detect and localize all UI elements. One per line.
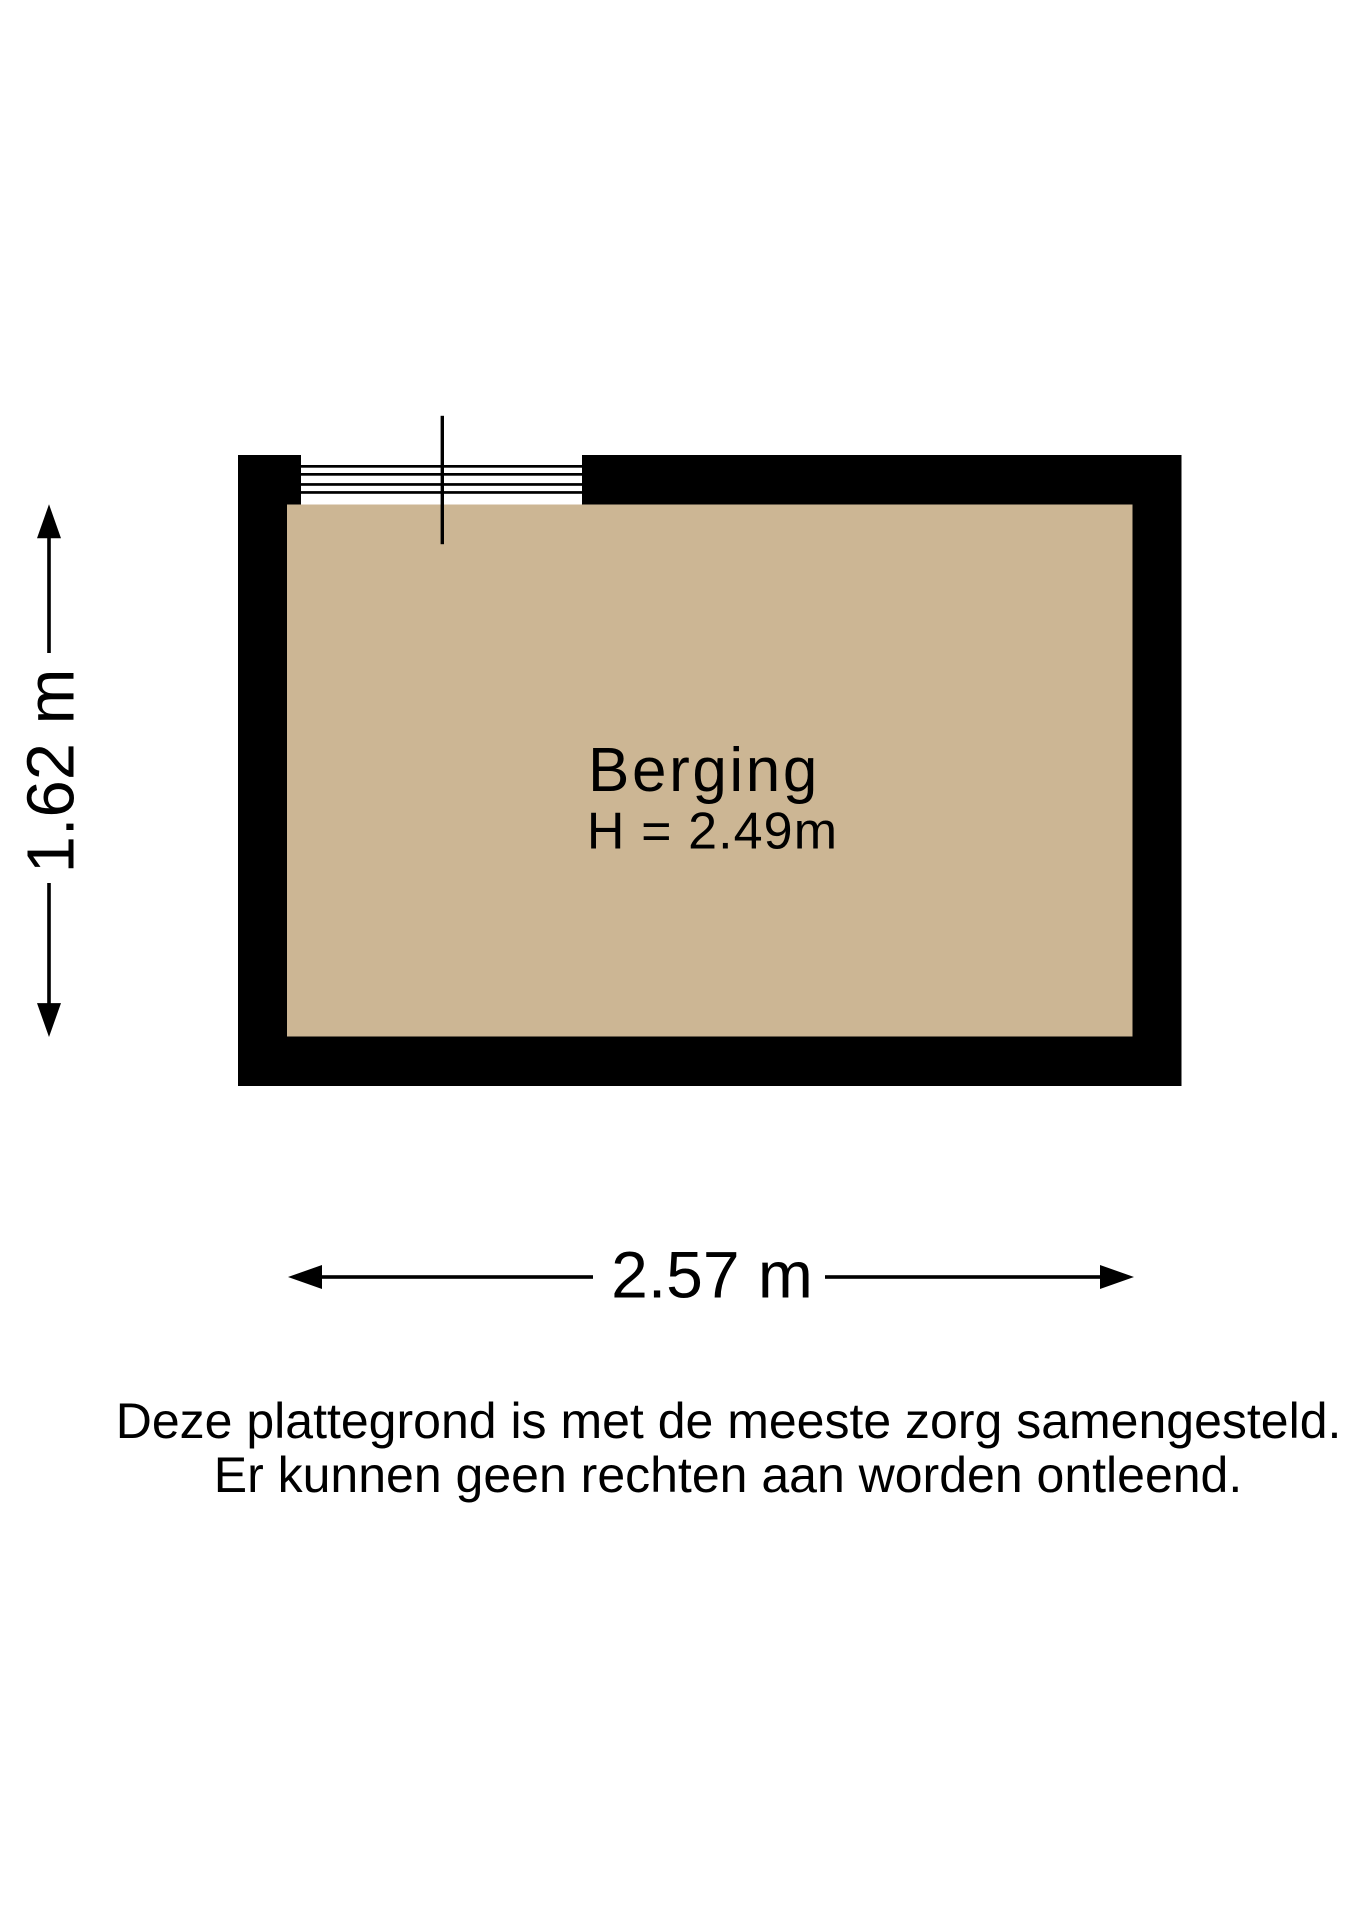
svg-text:Berging: Berging <box>588 736 820 805</box>
svg-text:Er kunnen geen rechten aan wor: Er kunnen geen rechten aan worden ontlee… <box>214 1447 1243 1503</box>
svg-text:Deze plattegrond is met de mee: Deze plattegrond is met de meeste zorg s… <box>116 1393 1342 1449</box>
svg-text:1.62 m: 1.62 m <box>14 669 89 874</box>
svg-text:H = 2.49m: H = 2.49m <box>587 803 838 861</box>
svg-text:2.57 m: 2.57 m <box>611 1238 813 1312</box>
